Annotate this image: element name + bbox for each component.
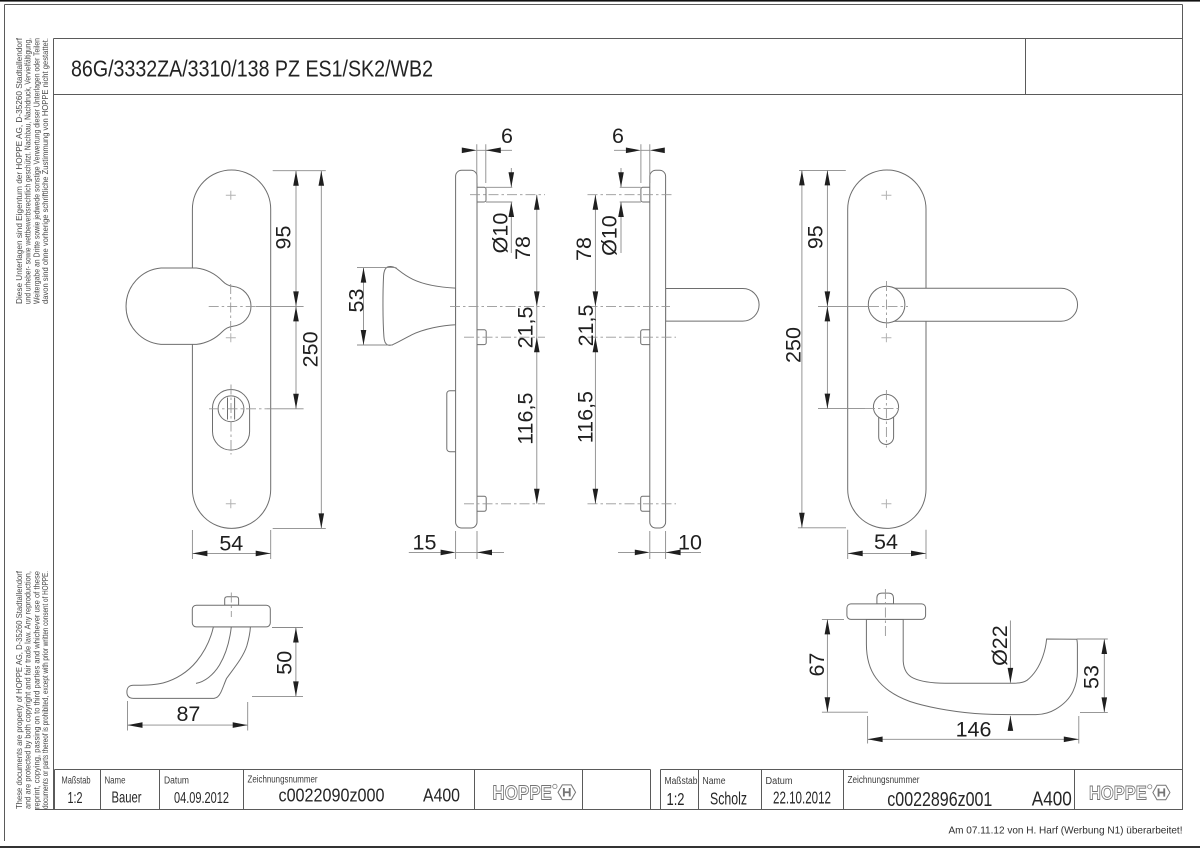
svg-text:Zeichnungsnummer: Zeichnungsnummer bbox=[848, 775, 921, 786]
svg-text:Am 07.11.12 von H. Harf (Werbu: Am 07.11.12 von H. Harf (Werbung N1) übe… bbox=[949, 825, 1183, 837]
svg-text:Name: Name bbox=[105, 776, 126, 787]
svg-text:53: 53 bbox=[344, 289, 368, 313]
svg-text:A400: A400 bbox=[423, 786, 460, 806]
svg-text:Ø22: Ø22 bbox=[988, 625, 1012, 666]
svg-text:116,5: 116,5 bbox=[514, 393, 538, 445]
svg-text:Zeichnungsnummer: Zeichnungsnummer bbox=[248, 775, 319, 786]
svg-text:Maßstab: Maßstab bbox=[62, 776, 91, 787]
svg-text:1:2: 1:2 bbox=[68, 790, 83, 807]
svg-text:04.09.2012: 04.09.2012 bbox=[174, 790, 229, 807]
svg-text:Ø10: Ø10 bbox=[489, 213, 513, 254]
svg-text:21,5: 21,5 bbox=[574, 305, 598, 347]
svg-text:250: 250 bbox=[782, 327, 806, 363]
svg-text:davon sind ohne vorherige schr: davon sind ohne vorherige schriftliche Z… bbox=[40, 38, 50, 304]
svg-text:95: 95 bbox=[804, 225, 828, 249]
svg-text:22.10.2012: 22.10.2012 bbox=[773, 788, 831, 808]
svg-text:54: 54 bbox=[874, 530, 898, 554]
svg-text:Maßstab: Maßstab bbox=[665, 776, 698, 787]
svg-text:116,5: 116,5 bbox=[573, 391, 597, 443]
svg-text:10: 10 bbox=[678, 530, 702, 554]
svg-text:Ø10: Ø10 bbox=[598, 215, 622, 256]
svg-text:c0022090z000: c0022090z000 bbox=[279, 786, 385, 806]
svg-text:Datum: Datum bbox=[766, 776, 793, 787]
svg-text:146: 146 bbox=[956, 717, 992, 741]
svg-text:95: 95 bbox=[272, 226, 296, 250]
svg-text:86G/3332ZA/3310/138 PZ ES1/SK2: 86G/3332ZA/3310/138 PZ ES1/SK2/WB2 bbox=[71, 56, 433, 82]
svg-text:6: 6 bbox=[501, 124, 513, 148]
svg-text:15: 15 bbox=[413, 530, 437, 554]
svg-text:Scholz: Scholz bbox=[710, 789, 747, 809]
svg-text:1:2: 1:2 bbox=[667, 789, 685, 809]
svg-text:documents or parts thereof is: documents or parts thereof is prohibited… bbox=[40, 571, 50, 809]
svg-text:78: 78 bbox=[572, 237, 596, 261]
svg-text:Name: Name bbox=[703, 776, 726, 787]
svg-text:53: 53 bbox=[1079, 665, 1103, 689]
svg-text:67: 67 bbox=[805, 653, 829, 677]
svg-text:50: 50 bbox=[273, 651, 297, 675]
svg-text:Datum: Datum bbox=[164, 776, 189, 787]
svg-text:Bauer: Bauer bbox=[112, 790, 142, 807]
svg-text:78: 78 bbox=[511, 236, 535, 260]
svg-text:c0022896z001: c0022896z001 bbox=[887, 789, 992, 811]
svg-text:21,5: 21,5 bbox=[514, 307, 538, 349]
svg-text:54: 54 bbox=[219, 531, 243, 555]
svg-text:250: 250 bbox=[299, 331, 323, 367]
svg-text:A400: A400 bbox=[1032, 789, 1072, 811]
svg-text:87: 87 bbox=[176, 702, 200, 726]
svg-text:6: 6 bbox=[612, 124, 624, 148]
